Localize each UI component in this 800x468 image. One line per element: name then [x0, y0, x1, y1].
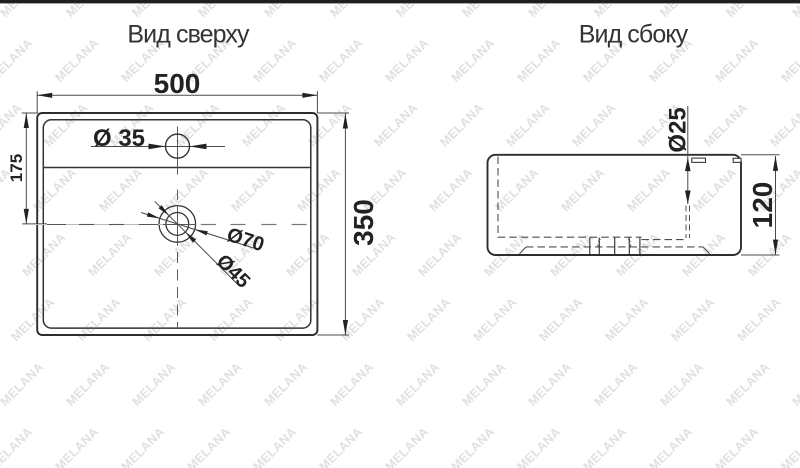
svg-text:MELANA: MELANA: [0, 36, 35, 85]
svg-text:Вид сбоку: Вид сбоку: [579, 21, 689, 49]
svg-text:175: 175: [7, 154, 26, 182]
svg-text:MELANA: MELANA: [569, 101, 618, 150]
svg-text:MELANA: MELANA: [591, 360, 640, 409]
svg-text:MELANA: MELANA: [0, 101, 24, 150]
svg-text:MELANA: MELANA: [459, 360, 508, 409]
svg-text:MELANA: MELANA: [250, 36, 299, 85]
svg-text:MELANA: MELANA: [514, 425, 563, 468]
svg-text:MELANA: MELANA: [580, 425, 629, 468]
svg-text:MELANA: MELANA: [239, 101, 288, 150]
svg-text:MELANA: MELANA: [118, 425, 167, 468]
svg-text:MELANA: MELANA: [712, 425, 761, 468]
svg-text:MELANA: MELANA: [250, 425, 299, 468]
svg-text:MELANA: MELANA: [96, 165, 145, 214]
svg-text:Ø25: Ø25: [664, 107, 691, 152]
svg-text:MELANA: MELANA: [668, 295, 717, 344]
svg-text:MELANA: MELANA: [712, 36, 761, 85]
svg-text:MELANA: MELANA: [327, 360, 376, 409]
svg-text:MELANA: MELANA: [492, 165, 541, 214]
svg-text:MELANA: MELANA: [184, 425, 233, 468]
svg-text:MELANA: MELANA: [624, 165, 673, 214]
svg-text:MELANA: MELANA: [371, 101, 420, 150]
svg-text:MELANA: MELANA: [294, 165, 343, 214]
svg-text:MELANA: MELANA: [316, 36, 365, 85]
svg-text:MELANA: MELANA: [393, 360, 442, 409]
svg-text:MELANA: MELANA: [789, 360, 800, 409]
svg-text:MELANA: MELANA: [701, 101, 750, 150]
svg-text:MELANA: MELANA: [426, 165, 475, 214]
svg-text:MELANA: MELANA: [8, 295, 57, 344]
svg-text:MELANA: MELANA: [415, 230, 464, 279]
svg-text:MELANA: MELANA: [734, 295, 783, 344]
svg-text:120: 120: [747, 182, 778, 229]
svg-text:350: 350: [348, 199, 379, 246]
svg-text:MELANA: MELANA: [74, 295, 123, 344]
svg-text:MELANA: MELANA: [283, 230, 332, 279]
svg-text:MELANA: MELANA: [448, 36, 497, 85]
svg-text:MELANA: MELANA: [778, 425, 800, 468]
svg-text:MELANA: MELANA: [437, 101, 486, 150]
svg-text:MELANA: MELANA: [723, 360, 772, 409]
svg-text:MELANA: MELANA: [261, 360, 310, 409]
svg-text:MELANA: MELANA: [657, 360, 706, 409]
svg-text:MELANA: MELANA: [382, 425, 431, 468]
svg-text:MELANA: MELANA: [129, 360, 178, 409]
svg-text:MELANA: MELANA: [382, 36, 431, 85]
svg-text:MELANA: MELANA: [448, 425, 497, 468]
svg-text:MELANA: MELANA: [195, 360, 244, 409]
svg-text:MELANA: MELANA: [0, 230, 2, 279]
svg-text:MELANA: MELANA: [690, 165, 739, 214]
svg-text:MELANA: MELANA: [767, 101, 800, 150]
svg-text:MELANA: MELANA: [63, 360, 112, 409]
svg-text:MELANA: MELANA: [52, 36, 101, 85]
svg-text:Вид сверху: Вид сверху: [127, 21, 250, 49]
svg-text:MELANA: MELANA: [514, 36, 563, 85]
svg-text:MELANA: MELANA: [404, 295, 453, 344]
svg-text:Ø 35: Ø 35: [93, 125, 145, 152]
svg-text:MELANA: MELANA: [503, 101, 552, 150]
svg-text:MELANA: MELANA: [0, 360, 46, 409]
svg-text:MELANA: MELANA: [228, 165, 277, 214]
svg-text:MELANA: MELANA: [140, 295, 189, 344]
svg-text:MELANA: MELANA: [536, 295, 585, 344]
svg-text:MELANA: MELANA: [470, 295, 519, 344]
svg-text:500: 500: [154, 68, 201, 99]
svg-text:MELANA: MELANA: [525, 360, 574, 409]
svg-text:MELANA: MELANA: [52, 425, 101, 468]
svg-text:Ø70: Ø70: [224, 224, 267, 256]
svg-text:MELANA: MELANA: [85, 230, 134, 279]
svg-text:MELANA: MELANA: [206, 295, 255, 344]
svg-text:MELANA: MELANA: [646, 425, 695, 468]
svg-text:MELANA: MELANA: [558, 165, 607, 214]
svg-text:MELANA: MELANA: [0, 425, 35, 468]
svg-text:MELANA: MELANA: [173, 101, 222, 150]
svg-text:MELANA: MELANA: [316, 425, 365, 468]
svg-text:MELANA: MELANA: [602, 295, 651, 344]
svg-text:MELANA: MELANA: [41, 101, 90, 150]
svg-text:MELANA: MELANA: [272, 295, 321, 344]
svg-text:MELANA: MELANA: [778, 36, 800, 85]
